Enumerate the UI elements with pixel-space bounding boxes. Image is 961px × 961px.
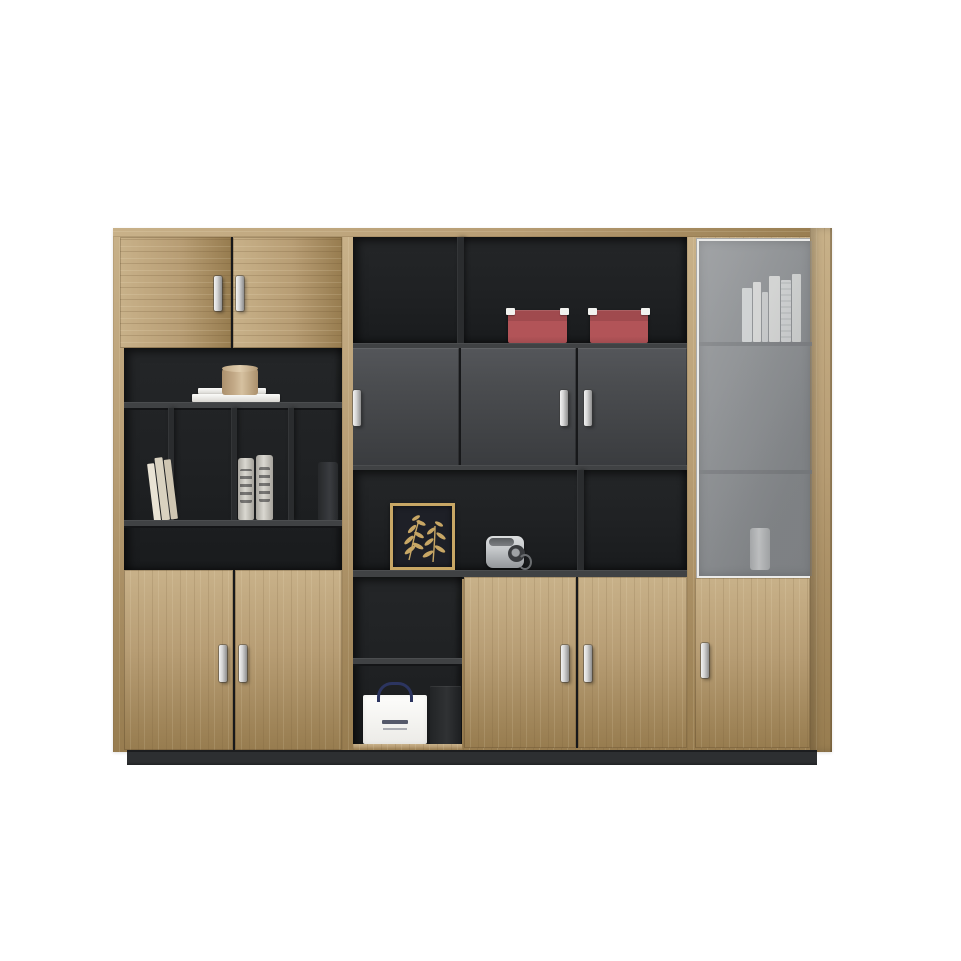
ceramic-vases — [238, 454, 274, 520]
cabinet-top-frame — [113, 228, 832, 237]
cabinet-plinth — [127, 750, 817, 765]
middle-bottom-door-right — [578, 577, 687, 748]
middle-display-divider — [577, 470, 584, 570]
book-spine — [792, 274, 801, 342]
vase — [256, 455, 273, 520]
book-spine — [769, 276, 780, 342]
divider-left-middle — [342, 237, 353, 750]
left-bottom-door-left — [124, 570, 233, 750]
dark-vase — [318, 462, 338, 520]
middle-display-shelf — [353, 470, 687, 570]
book-spine — [762, 292, 768, 342]
shopping-bag-logo-mark — [382, 720, 408, 724]
left-bottom-door-pair — [124, 570, 342, 750]
left-top-door-right — [233, 237, 342, 348]
cabinet-body — [113, 228, 832, 752]
wooden-canister — [222, 368, 258, 395]
glass-shelf-line-2 — [699, 470, 812, 474]
middle-bottom-door-pair — [464, 577, 687, 748]
handle-left-top-door-left — [214, 276, 222, 311]
handle-left-bottom-door-right — [239, 645, 247, 682]
glass-books — [742, 272, 804, 342]
book-spine — [753, 282, 761, 342]
handle-charcoal-door-2 — [560, 390, 568, 426]
glass-shelf-line-1 — [699, 342, 812, 346]
vase — [238, 458, 254, 520]
vase-print — [259, 467, 271, 502]
left-shelf-2 — [124, 520, 342, 528]
handle-left-bottom-door-left — [219, 645, 227, 682]
cabinet-right-side-panel — [810, 228, 832, 752]
left-open-shelving — [124, 348, 342, 570]
handle-charcoal-door-1 — [353, 390, 361, 426]
handle-left-top-door-right — [236, 276, 244, 311]
book-spine — [742, 288, 752, 342]
leaning-books — [146, 452, 184, 521]
botanical-artwork-motif — [393, 506, 452, 567]
handle-charcoal-door-3 — [584, 390, 592, 426]
red-storage-box-1 — [508, 310, 567, 343]
charcoal-door-3 — [578, 348, 687, 465]
camera-strap — [518, 554, 532, 570]
botanical-artwork — [390, 503, 455, 570]
middle-open-niche — [353, 577, 462, 750]
niche-shelf — [353, 658, 462, 666]
middle-top-open-shelf — [353, 237, 687, 343]
left-bottom-door-right — [235, 570, 342, 750]
product-photo-page: { "scene": { "title": "Modern office wal… — [0, 0, 961, 961]
white-books-stack — [192, 394, 280, 402]
glass-vase — [750, 528, 770, 570]
red-storage-box-2 — [590, 310, 648, 343]
charcoal-door-row — [353, 348, 687, 465]
handle-middle-bottom-door-left — [561, 645, 569, 682]
right-bottom-door — [695, 578, 810, 748]
handle-middle-bottom-door-right — [584, 645, 592, 682]
vase-print — [240, 469, 251, 502]
handle-right-bottom-door — [701, 643, 709, 678]
charcoal-door-2 — [461, 348, 576, 465]
left-top-door-pair — [120, 237, 342, 348]
book-spine — [781, 280, 791, 342]
shopping-bag — [363, 695, 427, 744]
middle-top-divider — [457, 237, 464, 343]
charcoal-door-1 — [353, 348, 459, 465]
pigeonhole-divider-2 — [231, 408, 237, 520]
middle-bottom-door-left — [464, 577, 576, 748]
gift-box — [430, 686, 461, 744]
glass-display-door — [697, 239, 814, 578]
pigeonhole-divider-3 — [288, 408, 294, 520]
silver-camera — [486, 536, 524, 568]
